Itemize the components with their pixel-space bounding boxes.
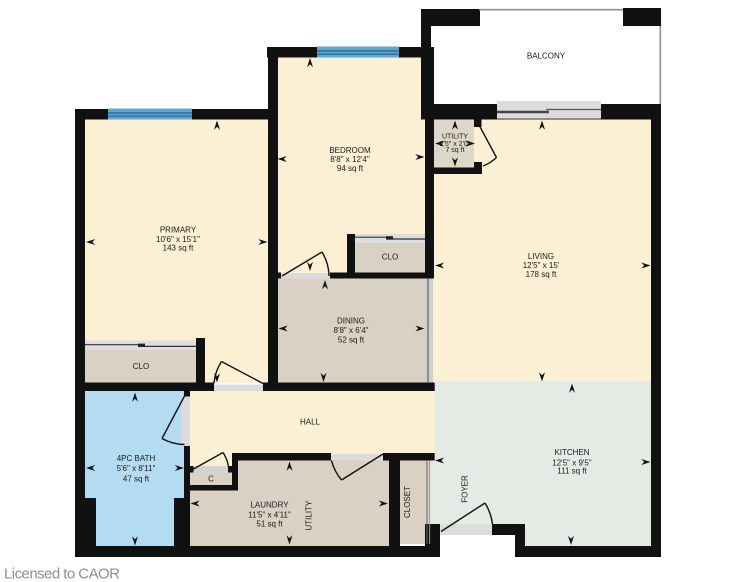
svg-text:PRIMARY: PRIMARY <box>160 226 197 235</box>
svg-text:143 sq ft: 143 sq ft <box>163 244 194 253</box>
svg-text:LIVING: LIVING <box>528 252 554 261</box>
svg-text:CLO: CLO <box>133 362 149 371</box>
svg-text:BALCONY: BALCONY <box>527 51 566 60</box>
svg-text:4PC BATH: 4PC BATH <box>117 454 156 463</box>
svg-text:FOYER: FOYER <box>461 475 470 503</box>
svg-text:Licensed to CAOR: Licensed to CAOR <box>4 566 120 582</box>
svg-text:47 sq ft: 47 sq ft <box>123 475 150 484</box>
svg-text:12'5" x 15': 12'5" x 15' <box>523 261 560 270</box>
svg-text:KITCHEN: KITCHEN <box>554 448 589 457</box>
svg-text:7 sq ft: 7 sq ft <box>445 147 464 154</box>
svg-text:94 sq ft: 94 sq ft <box>337 164 364 173</box>
svg-text:51 sq ft: 51 sq ft <box>256 520 283 529</box>
svg-text:CLOSET: CLOSET <box>403 486 412 518</box>
svg-text:DINING: DINING <box>337 317 365 326</box>
svg-text:UTILITY: UTILITY <box>305 500 314 530</box>
svg-text:11'5" x 4'11": 11'5" x 4'11" <box>248 511 291 520</box>
svg-text:C: C <box>208 475 214 484</box>
svg-text:8'8" x 12'4": 8'8" x 12'4" <box>330 155 370 164</box>
svg-text:UTILITY: UTILITY <box>442 133 468 140</box>
svg-text:52 sq ft: 52 sq ft <box>338 336 365 345</box>
svg-text:178 sq ft: 178 sq ft <box>526 270 557 279</box>
svg-text:BEDROOM: BEDROOM <box>329 146 371 155</box>
svg-text:LAUNDRY: LAUNDRY <box>250 501 289 510</box>
svg-text:HALL: HALL <box>300 418 321 427</box>
svg-text:5'6" x 8'11": 5'6" x 8'11" <box>117 464 156 473</box>
svg-text:8'8" x 6'4": 8'8" x 6'4" <box>334 326 369 335</box>
svg-text:111 sq ft: 111 sq ft <box>557 467 587 476</box>
svg-text:CLO: CLO <box>382 253 398 262</box>
